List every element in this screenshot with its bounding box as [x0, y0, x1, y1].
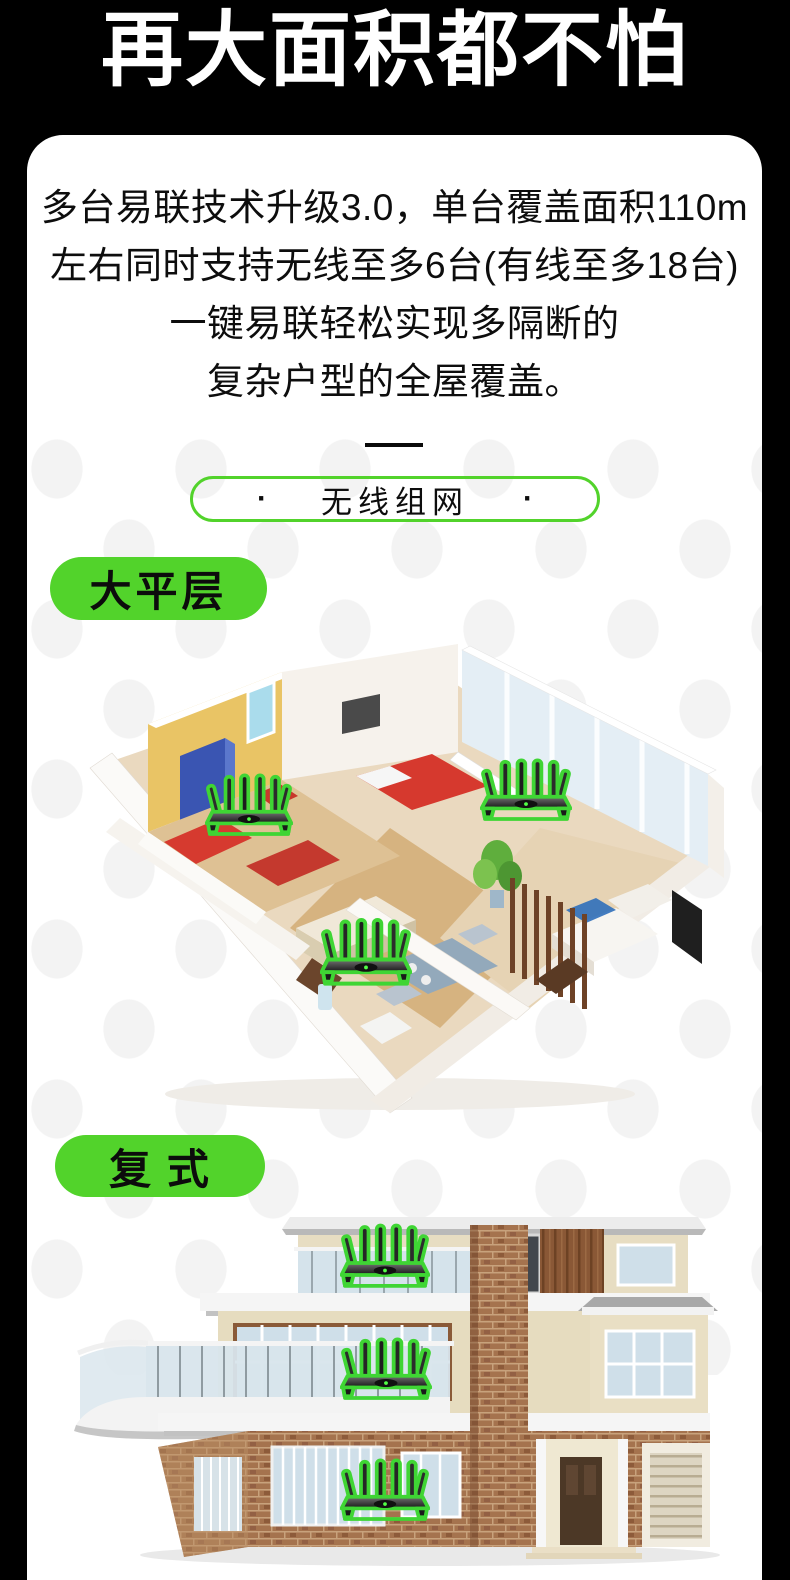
router-icon — [205, 768, 293, 838]
router-icon — [340, 1453, 430, 1523]
bullet-dot-icon: · — [257, 482, 267, 516]
router-icon — [320, 912, 412, 988]
flat-floorplan-image — [60, 628, 740, 1128]
content-card: 多台易联技术升级3.0，单台覆盖面积110m 左右同时支持无线至多6台(有线至多… — [27, 135, 762, 1580]
wireless-networking-pill-button[interactable]: · 无线组网 · — [190, 476, 600, 522]
wireless-networking-label: 无线组网 — [321, 477, 469, 522]
router-icon — [340, 1332, 432, 1402]
duplex-section-badge: 复 式 — [55, 1135, 265, 1197]
divider — [365, 443, 423, 447]
intro-line: 左右同时支持无线至多6台(有线至多18台) — [27, 237, 762, 295]
flat-section-badge: 大平层 — [50, 557, 267, 620]
intro-line: 多台易联技术升级3.0，单台覆盖面积110m — [27, 179, 762, 237]
intro-line: 一键易联轻松实现多隔断的 — [27, 295, 762, 353]
router-icon — [480, 753, 572, 823]
page: 再大面积都不怕 多台易联技术升级3.0，单台覆盖面积110m 左右同时支持无线至… — [0, 0, 790, 1580]
router-icon — [340, 1218, 430, 1290]
intro-line: 复杂户型的全屋覆盖。 — [27, 353, 762, 411]
bullet-dot-icon: · — [523, 482, 533, 516]
intro-paragraph: 多台易联技术升级3.0，单台覆盖面积110m 左右同时支持无线至多6台(有线至多… — [27, 179, 762, 411]
page-title: 再大面积都不怕 — [0, 4, 790, 98]
